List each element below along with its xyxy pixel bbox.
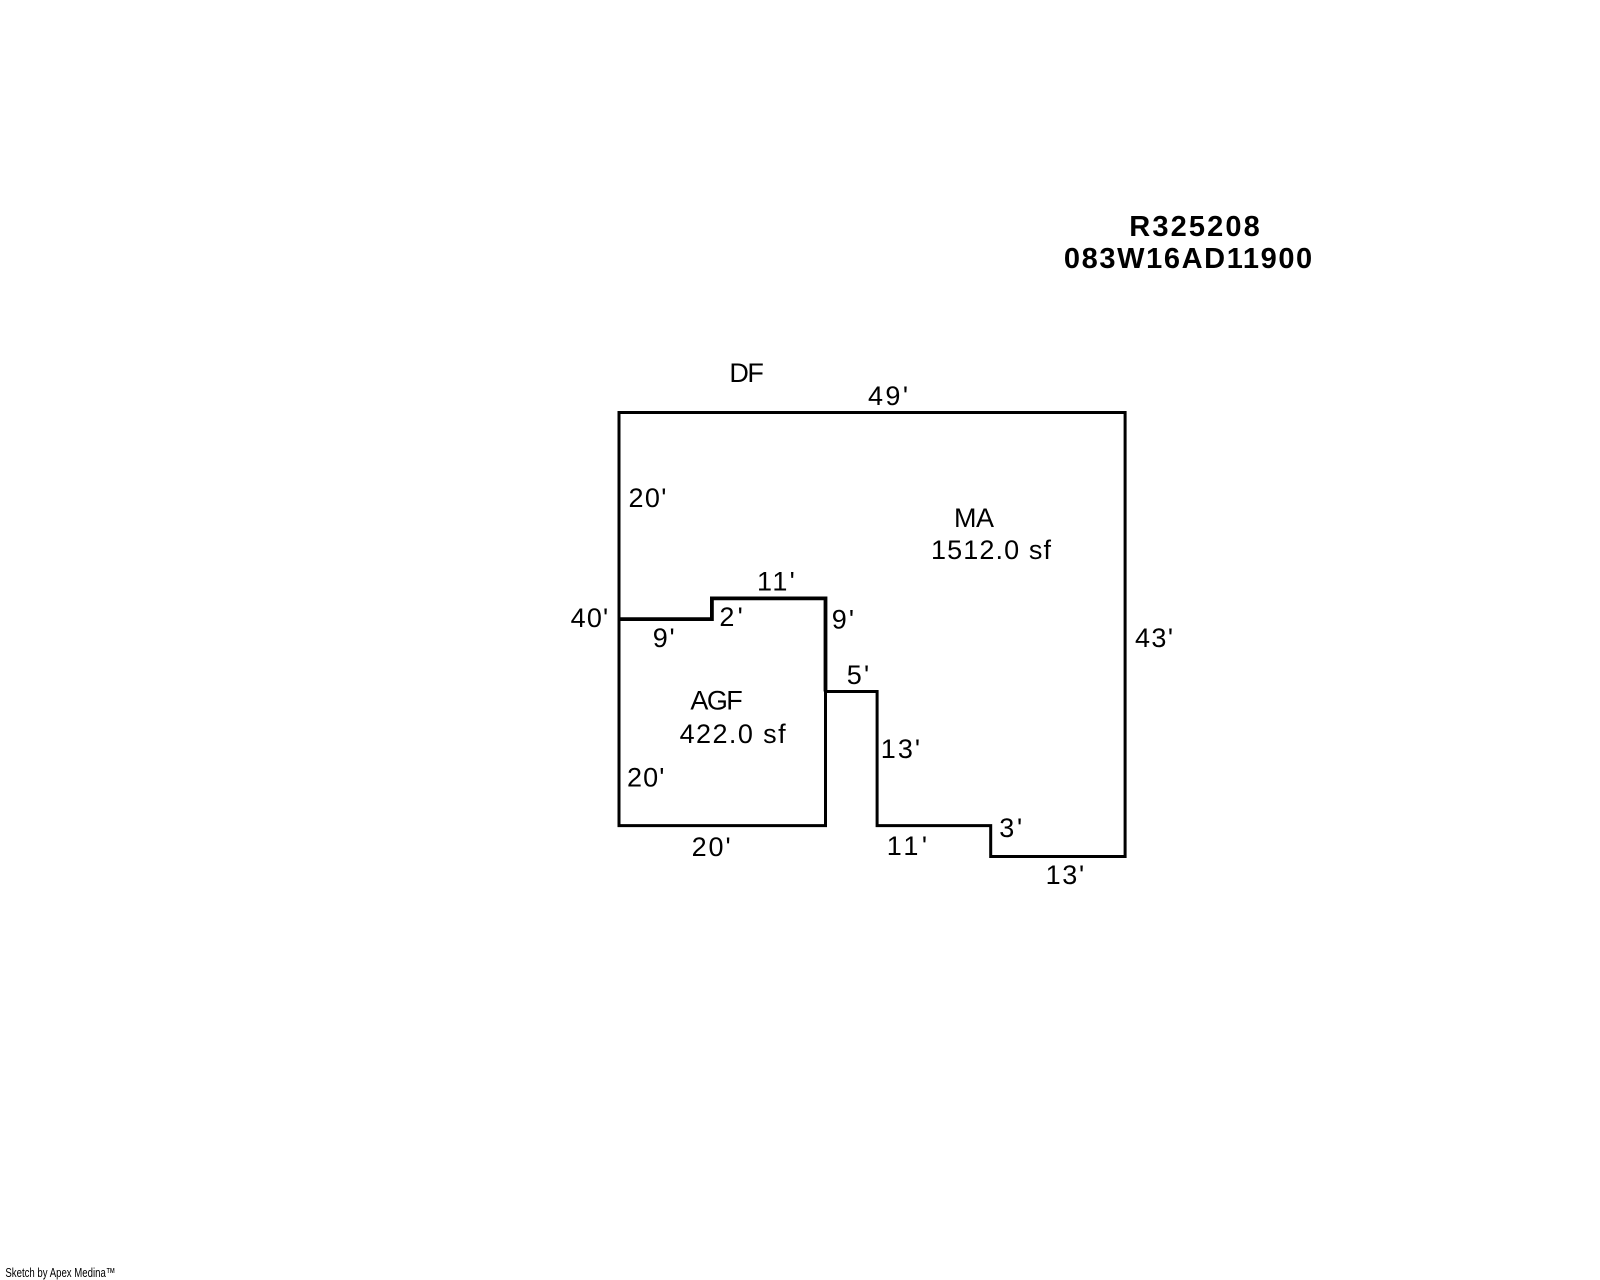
svg-text:AGF: AGF bbox=[690, 685, 742, 715]
svg-text:1512.0 sf: 1512.0 sf bbox=[931, 535, 1051, 565]
svg-text:Sketch by Apex Medina™: Sketch by Apex Medina™ bbox=[5, 1265, 115, 1280]
svg-text:11': 11' bbox=[757, 566, 795, 596]
svg-text:2': 2' bbox=[719, 602, 742, 632]
svg-text:9': 9' bbox=[653, 623, 675, 653]
svg-text:20': 20' bbox=[628, 483, 666, 513]
svg-text:083W16AD11900: 083W16AD11900 bbox=[1064, 243, 1312, 275]
svg-text:40': 40' bbox=[571, 603, 609, 633]
svg-text:422.0 sf: 422.0 sf bbox=[680, 719, 786, 749]
svg-text:3': 3' bbox=[999, 813, 1022, 843]
svg-text:R325208: R325208 bbox=[1129, 211, 1260, 243]
svg-text:DF: DF bbox=[729, 358, 764, 388]
svg-text:13': 13' bbox=[881, 734, 920, 764]
svg-text:13': 13' bbox=[1046, 860, 1085, 890]
svg-text:20': 20' bbox=[627, 763, 664, 793]
svg-text:43': 43' bbox=[1135, 623, 1173, 653]
svg-text:49': 49' bbox=[868, 381, 908, 411]
svg-text:11': 11' bbox=[887, 831, 927, 861]
svg-text:9': 9' bbox=[832, 604, 854, 634]
svg-text:20': 20' bbox=[692, 832, 731, 862]
svg-text:5': 5' bbox=[847, 660, 869, 690]
svg-text:MA: MA bbox=[954, 503, 994, 533]
